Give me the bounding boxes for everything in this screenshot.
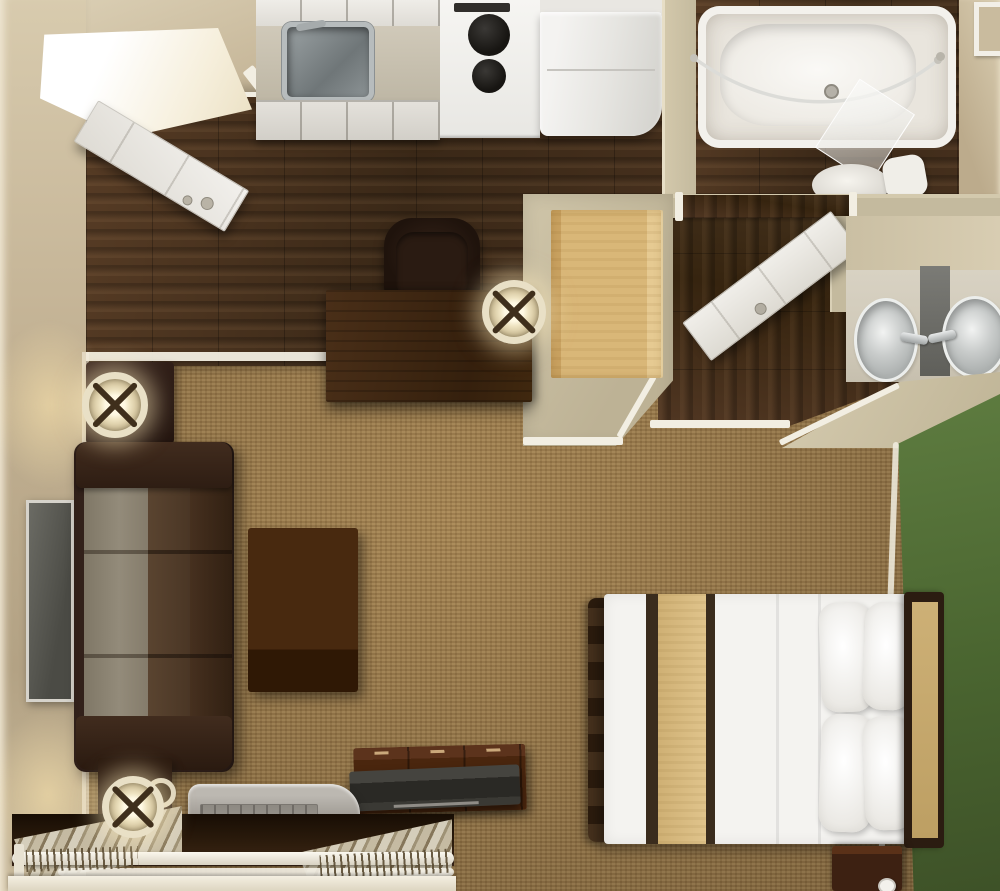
microwave-vent <box>454 3 510 12</box>
deadbolt-icon <box>181 194 195 208</box>
refrigerator <box>540 12 662 136</box>
wall-mirror-frame <box>974 2 1000 56</box>
kitchen-sink <box>282 22 374 102</box>
sofa-armrest <box>76 442 232 488</box>
cup-icon <box>878 878 896 891</box>
floor-plan-render <box>0 0 1000 891</box>
coffee-table <box>248 528 358 692</box>
closet-front-trim <box>8 876 456 891</box>
bed-runner-stripe <box>706 594 715 844</box>
wall-tv <box>26 500 74 702</box>
stove-burner-icon <box>472 59 506 93</box>
bench-counter <box>551 210 663 378</box>
desk-lamp <box>482 280 546 344</box>
stove-burner-icon <box>468 14 510 56</box>
duvet-fold <box>776 594 779 844</box>
rod-mount-icon <box>936 52 945 61</box>
kitchen-lower-cabinets <box>256 100 440 140</box>
hangers-icon <box>26 846 139 872</box>
door-jamb <box>675 192 683 221</box>
corridor-transition-trim <box>650 420 790 428</box>
shower-rod <box>686 38 950 122</box>
bed-runner-stripe <box>646 594 658 844</box>
headboard <box>904 592 944 848</box>
vanity-back-wall <box>846 216 1000 272</box>
table-lamp <box>102 776 164 838</box>
baseboard <box>523 437 623 445</box>
door-knob-icon <box>753 300 770 317</box>
dresser-tv <box>349 764 521 811</box>
bed-runner <box>658 594 706 844</box>
door-knob-icon <box>198 195 216 213</box>
floor-lamp <box>82 372 148 438</box>
